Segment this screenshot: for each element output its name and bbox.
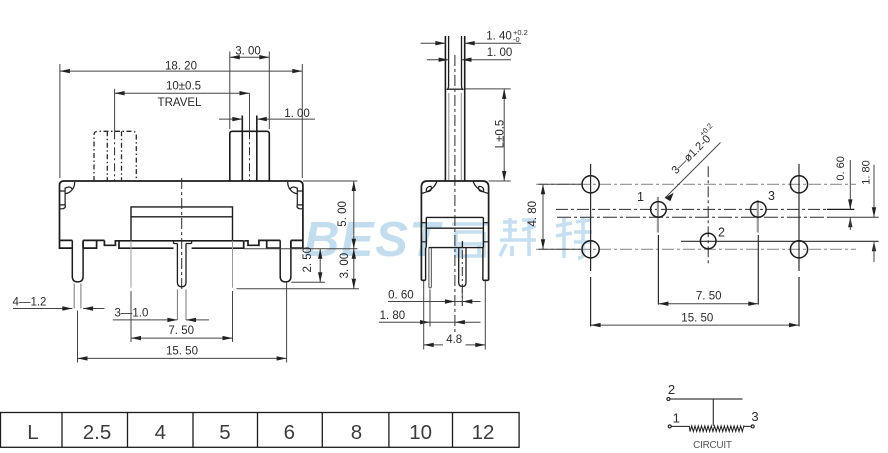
svg-text:1. 80: 1. 80 bbox=[861, 160, 873, 184]
svg-text:18. 20: 18. 20 bbox=[165, 61, 197, 73]
svg-text:0. 60: 0. 60 bbox=[388, 290, 414, 302]
svg-text:1. 40: 1. 40 bbox=[486, 31, 512, 43]
svg-text:15. 50: 15. 50 bbox=[681, 313, 713, 325]
svg-text:1: 1 bbox=[637, 190, 644, 204]
svg-text:3: 3 bbox=[751, 409, 758, 424]
svg-text:6: 6 bbox=[284, 421, 295, 444]
svg-text:1. 00: 1. 00 bbox=[284, 108, 310, 120]
svg-text:5: 5 bbox=[219, 421, 230, 444]
svg-text:12: 12 bbox=[472, 421, 495, 444]
svg-text:4: 4 bbox=[155, 421, 166, 444]
svg-text:0. 60: 0. 60 bbox=[835, 156, 847, 180]
svg-text:1. 00: 1. 00 bbox=[487, 47, 513, 59]
svg-text:7. 50: 7. 50 bbox=[696, 290, 722, 302]
svg-text:2. 50: 2. 50 bbox=[302, 247, 314, 273]
svg-text:BEST: BEST bbox=[304, 213, 443, 267]
svg-text:2: 2 bbox=[718, 226, 725, 240]
svg-text:3—ø1.2-0: 3—ø1.2-0 bbox=[670, 133, 714, 177]
svg-text:4. 80: 4. 80 bbox=[527, 201, 539, 227]
svg-text:3: 3 bbox=[768, 189, 775, 203]
svg-text:3. 00: 3. 00 bbox=[339, 253, 351, 279]
svg-text:5. 00: 5. 00 bbox=[337, 201, 349, 227]
svg-text:4.8: 4.8 bbox=[446, 334, 462, 346]
svg-text:CIRCUIT: CIRCUIT bbox=[693, 440, 732, 451]
svg-text:-0: -0 bbox=[513, 35, 520, 44]
svg-text:2.5: 2.5 bbox=[83, 421, 112, 444]
svg-text:2: 2 bbox=[668, 382, 675, 397]
svg-text:4—1.2: 4—1.2 bbox=[13, 297, 47, 309]
svg-text:1: 1 bbox=[673, 411, 680, 426]
svg-text:10: 10 bbox=[409, 421, 432, 444]
svg-text:+0.2: +0.2 bbox=[698, 121, 715, 138]
svg-text:10±0.5: 10±0.5 bbox=[166, 81, 201, 93]
svg-text:L±0.5: L±0.5 bbox=[494, 120, 506, 149]
svg-text:3. 00: 3. 00 bbox=[235, 46, 261, 58]
svg-text:TRAVEL: TRAVEL bbox=[158, 97, 202, 109]
svg-text:L: L bbox=[27, 421, 38, 444]
svg-text:7. 50: 7. 50 bbox=[168, 325, 194, 337]
svg-text:1. 80: 1. 80 bbox=[380, 310, 406, 322]
svg-text:15. 50: 15. 50 bbox=[166, 345, 198, 357]
svg-text:8: 8 bbox=[351, 421, 362, 444]
